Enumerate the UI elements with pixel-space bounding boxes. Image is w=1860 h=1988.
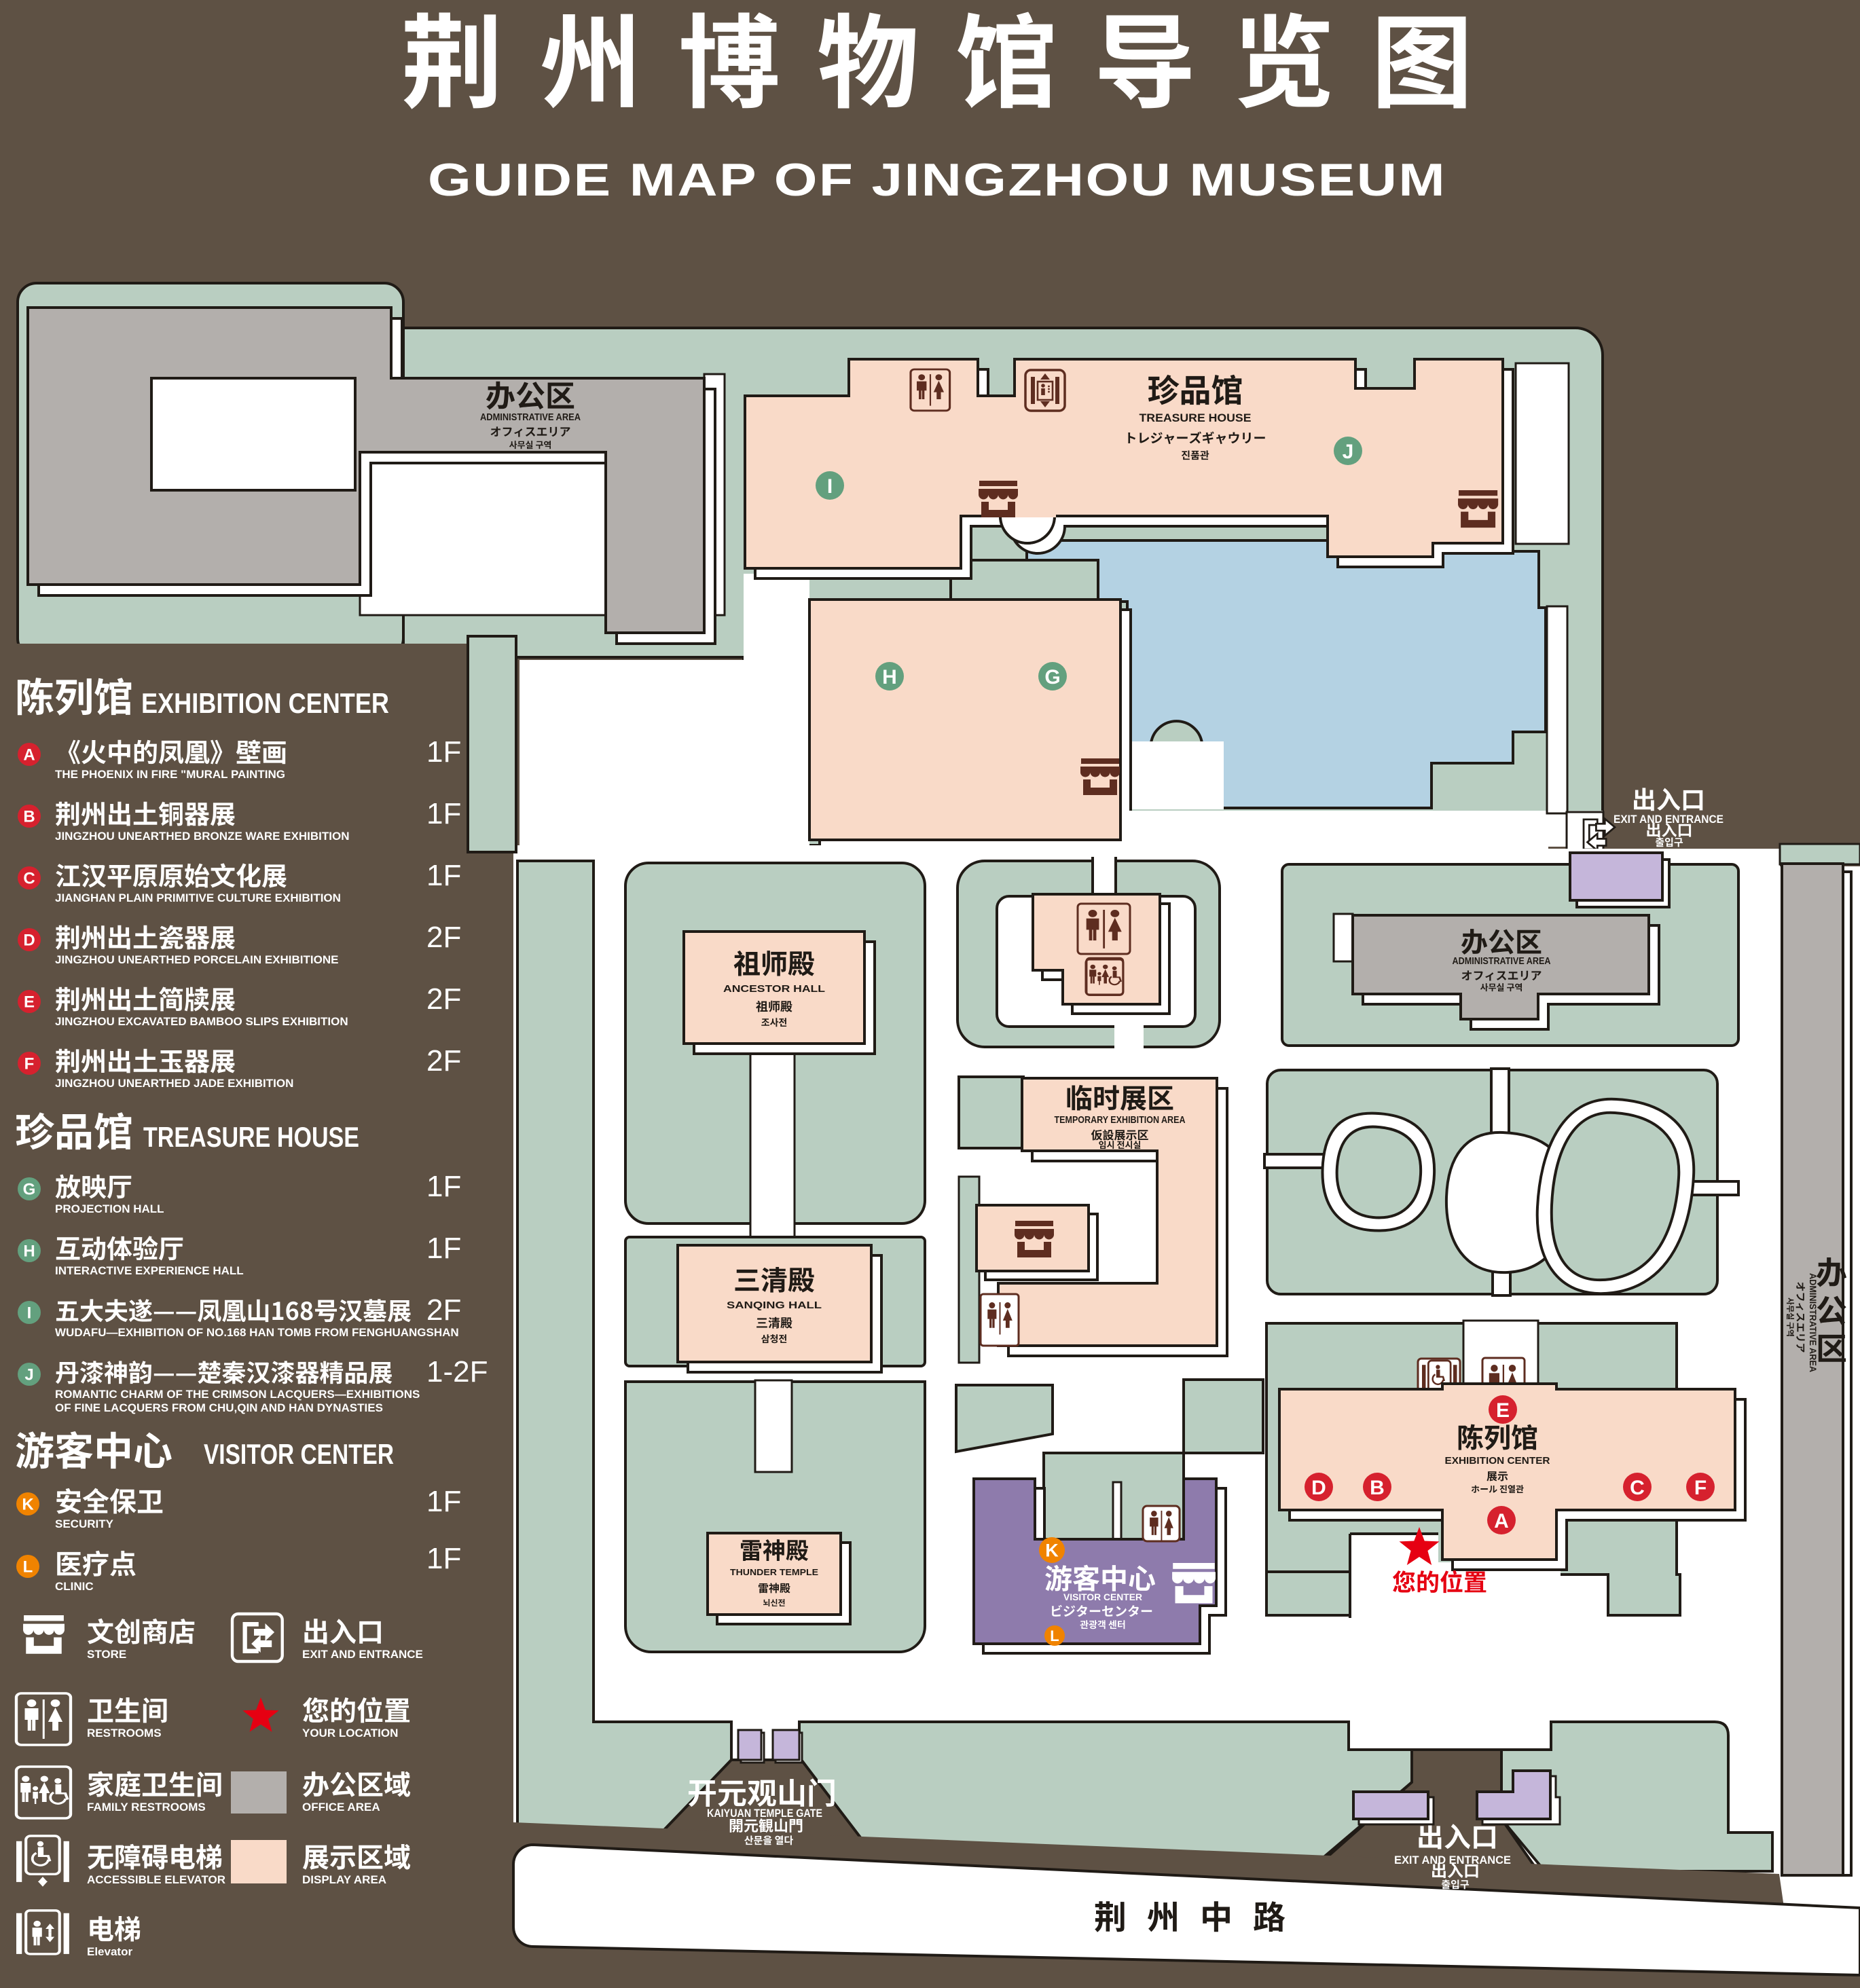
svg-text:F: F	[1694, 1477, 1707, 1499]
svg-text:G: G	[23, 1181, 36, 1199]
svg-text:1F: 1F	[426, 735, 461, 769]
svg-text:I: I	[27, 1304, 32, 1323]
svg-text:THUNDER TEMPLE: THUNDER TEMPLE	[730, 1567, 818, 1577]
svg-text:Elevator: Elevator	[87, 1945, 132, 1958]
svg-text:SANQING HALL: SANQING HALL	[727, 1300, 822, 1311]
svg-text:K: K	[22, 1496, 34, 1514]
svg-text:D: D	[23, 932, 35, 950]
svg-text:I: I	[827, 475, 833, 498]
svg-text:F: F	[24, 1055, 35, 1073]
svg-text:H: H	[23, 1242, 35, 1261]
svg-text:PROJECTION HALL: PROJECTION HALL	[55, 1202, 164, 1215]
svg-text:JINGZHOU UNEARTHED PORCELAIN E: JINGZHOU UNEARTHED PORCELAIN EXHIBITIONE	[55, 953, 338, 966]
svg-text:2F: 2F	[426, 982, 461, 1016]
svg-text:L: L	[23, 1558, 33, 1577]
svg-text:2F: 2F	[426, 1044, 461, 1078]
svg-text:ACCESSIBLE ELEVATOR: ACCESSIBLE ELEVATOR	[87, 1873, 225, 1886]
svg-text:CLINIC: CLINIC	[55, 1580, 94, 1593]
svg-text:J: J	[24, 1366, 33, 1384]
svg-text:2F: 2F	[426, 1293, 461, 1327]
svg-text:RESTROOMS: RESTROOMS	[87, 1727, 162, 1739]
svg-text:E: E	[1496, 1399, 1510, 1422]
svg-text:TREASURE HOUSE: TREASURE HOUSE	[1139, 411, 1252, 424]
svg-text:SECURITY: SECURITY	[55, 1517, 114, 1530]
svg-text:JIANGHAN PLAIN PRIMITIVE CULTU: JIANGHAN PLAIN PRIMITIVE CULTURE EXHIBIT…	[55, 891, 341, 904]
svg-text:1F: 1F	[426, 1170, 461, 1203]
svg-text:FAMILY RESTROOMS: FAMILY RESTROOMS	[87, 1801, 206, 1814]
svg-text:A: A	[1494, 1510, 1509, 1532]
svg-text:H: H	[882, 666, 897, 688]
svg-text:C: C	[1630, 1477, 1645, 1499]
svg-text:1F: 1F	[426, 1485, 461, 1518]
svg-text:KAIYUAN TEMPLE GATE: KAIYUAN TEMPLE GATE	[707, 1807, 822, 1820]
svg-text:EXIT AND ENTRANCE: EXIT AND ENTRANCE	[302, 1648, 423, 1661]
svg-text:INTERACTIVE EXPERIENCE HALL: INTERACTIVE EXPERIENCE HALL	[55, 1264, 244, 1277]
svg-text:EXHIBITION CENTER: EXHIBITION CENTER	[1445, 1455, 1550, 1467]
svg-text:B: B	[1370, 1477, 1385, 1499]
svg-text:DISPLAY AREA: DISPLAY AREA	[302, 1873, 386, 1886]
svg-text:ANCESTOR HALL: ANCESTOR HALL	[723, 983, 825, 995]
svg-text:G: G	[1044, 666, 1060, 688]
svg-text:VISITOR CENTER: VISITOR CENTER	[204, 1438, 394, 1470]
svg-text:2F: 2F	[426, 921, 461, 954]
svg-text:VISITOR CENTER: VISITOR CENTER	[1063, 1592, 1142, 1602]
svg-text:L: L	[1050, 1627, 1059, 1644]
svg-text:ADMINISTRATIVE AREA: ADMINISTRATIVE AREA	[480, 411, 581, 423]
svg-text:EXHIBITION CENTER: EXHIBITION CENTER	[141, 687, 389, 719]
svg-text:GUIDE MAP OF JINGZHOU MUSEUM: GUIDE MAP OF JINGZHOU MUSEUM	[428, 154, 1446, 206]
svg-text:JINGZHOU UNEARTHED BRONZE WARE: JINGZHOU UNEARTHED BRONZE WARE EXHIBITIO…	[55, 830, 350, 843]
svg-text:WUDAFU—EXHIBITION OF NO.168 HA: WUDAFU—EXHIBITION OF NO.168 HAN TOMB FRO…	[55, 1326, 459, 1339]
svg-text:ROMANTIC CHARM OF THE CRIMSON: ROMANTIC CHARM OF THE CRIMSON LACQUERS—E…	[55, 1388, 420, 1401]
svg-text:TEMPORARY EXHIBITION AREA: TEMPORARY EXHIBITION AREA	[1055, 1114, 1186, 1126]
svg-text:1F: 1F	[426, 1542, 461, 1575]
svg-text:J: J	[1343, 441, 1354, 463]
svg-text:YOUR LOCATION: YOUR LOCATION	[302, 1727, 398, 1739]
svg-text:JINGZHOU UNEARTHED JADE EXHIBI: JINGZHOU UNEARTHED JADE EXHIBITION	[55, 1077, 293, 1090]
svg-text:1F: 1F	[426, 797, 461, 830]
svg-text:EXIT AND ENTRANCE: EXIT AND ENTRANCE	[1613, 813, 1724, 826]
svg-text:C: C	[23, 870, 35, 888]
svg-text:OF FINE LACQUERS FROM CHU,QIN: OF FINE LACQUERS FROM CHU,QIN AND HAN DY…	[55, 1401, 383, 1414]
svg-text:1F: 1F	[426, 859, 461, 892]
svg-text:TREASURE HOUSE: TREASURE HOUSE	[143, 1121, 359, 1153]
svg-text:OFFICE AREA: OFFICE AREA	[302, 1801, 380, 1814]
svg-text:THE PHOENIX IN FIRE "MURAL PAI: THE PHOENIX IN FIRE "MURAL PAINTING	[55, 768, 285, 781]
svg-text:JINGZHOU EXCAVATED BAMBOO SLIP: JINGZHOU EXCAVATED BAMBOO SLIPS EXHIBITI…	[55, 1015, 348, 1028]
svg-text:E: E	[24, 993, 35, 1012]
svg-text:ADMINISTRATIVE AREA: ADMINISTRATIVE AREA	[1453, 955, 1551, 967]
svg-text:1F: 1F	[426, 1232, 461, 1265]
svg-text:B: B	[23, 808, 35, 826]
svg-text:STORE: STORE	[87, 1648, 126, 1661]
svg-text:1-2F: 1-2F	[426, 1355, 488, 1388]
svg-text:D: D	[1311, 1477, 1326, 1499]
svg-text:K: K	[1045, 1541, 1059, 1561]
svg-text:ADMINISTRATIVE AREA: ADMINISTRATIVE AREA	[1808, 1273, 1819, 1372]
svg-text:A: A	[23, 746, 35, 765]
